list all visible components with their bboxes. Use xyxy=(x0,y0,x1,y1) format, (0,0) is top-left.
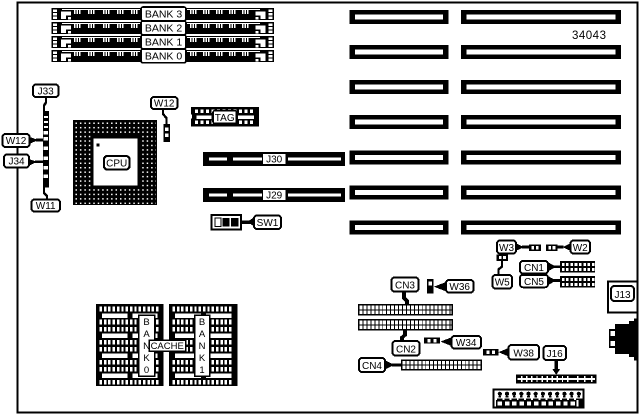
svg-text:CN1: CN1 xyxy=(524,263,544,274)
svg-text:B: B xyxy=(199,317,205,328)
svg-text:K: K xyxy=(143,353,150,364)
svg-text:N: N xyxy=(199,341,206,352)
svg-text:CPU: CPU xyxy=(106,158,127,169)
svg-text:SW1: SW1 xyxy=(257,218,279,229)
svg-text:W5: W5 xyxy=(495,278,510,289)
svg-text:B: B xyxy=(143,317,149,328)
svg-text:CN5: CN5 xyxy=(524,277,544,288)
svg-text:W3: W3 xyxy=(499,243,514,254)
svg-text:CN4: CN4 xyxy=(362,361,382,372)
svg-text:J34: J34 xyxy=(8,157,25,168)
svg-text:J16: J16 xyxy=(547,349,564,360)
svg-text:A: A xyxy=(199,329,206,340)
svg-text:BANK 0: BANK 0 xyxy=(145,50,183,62)
svg-text:BANK 3: BANK 3 xyxy=(145,8,183,20)
svg-text:CN2: CN2 xyxy=(396,344,416,355)
svg-text:CN3: CN3 xyxy=(395,281,415,292)
svg-text:J29: J29 xyxy=(266,191,283,202)
svg-text:A: A xyxy=(143,329,150,340)
svg-text:J13: J13 xyxy=(614,290,631,301)
svg-text:K: K xyxy=(199,353,206,364)
svg-text:0: 0 xyxy=(144,365,149,376)
svg-text:BANK 2: BANK 2 xyxy=(145,22,183,34)
svg-text:W12: W12 xyxy=(6,136,27,147)
svg-text:W11: W11 xyxy=(36,201,56,212)
svg-text:W2: W2 xyxy=(573,243,588,254)
svg-text:W34: W34 xyxy=(456,338,477,349)
svg-text:W36: W36 xyxy=(449,282,470,293)
svg-text:BANK 1: BANK 1 xyxy=(145,36,183,48)
svg-text:W12: W12 xyxy=(154,99,175,110)
svg-text:J33: J33 xyxy=(38,86,55,97)
svg-text:34043: 34043 xyxy=(572,30,606,42)
svg-text:W38: W38 xyxy=(513,348,534,359)
svg-text:1: 1 xyxy=(199,365,204,376)
svg-text:CACHE: CACHE xyxy=(151,341,184,352)
svg-text:TAG: TAG xyxy=(215,113,235,124)
svg-text:J30: J30 xyxy=(266,155,283,166)
